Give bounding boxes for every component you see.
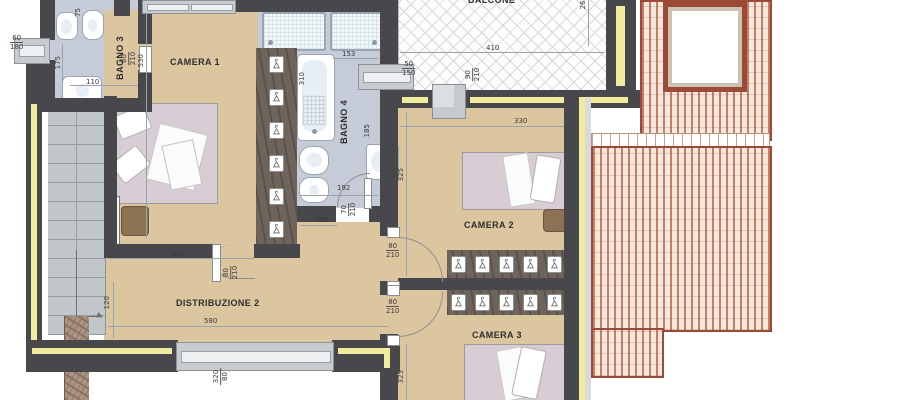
dim-580: 580 bbox=[204, 317, 217, 325]
bagno4-toilet bbox=[299, 146, 329, 175]
wall bbox=[40, 98, 152, 112]
dimension-line bbox=[300, 225, 338, 226]
dim-110: 110 bbox=[86, 78, 99, 86]
wall-outer-right bbox=[564, 90, 579, 400]
dim-window-bagno3: 60180 bbox=[8, 34, 25, 51]
insulation-strip bbox=[338, 348, 390, 354]
wall-center-vertical bbox=[380, 88, 398, 236]
camera3-door-jamb bbox=[387, 285, 400, 296]
room-label-bagno4: BAGNO 4 bbox=[339, 100, 349, 144]
camera1-door-leaf bbox=[212, 244, 221, 282]
distribuzione2-floor bbox=[104, 222, 398, 342]
bagno4-bidet bbox=[299, 177, 329, 203]
hanger-icon bbox=[475, 256, 490, 273]
camera2-door-jamb bbox=[387, 227, 400, 238]
hanger-icon bbox=[523, 294, 538, 311]
room-label-distribuzione2: DISTRIBUZIONE 2 bbox=[176, 298, 260, 308]
dimension-line bbox=[400, 126, 564, 127]
camera1-chair bbox=[121, 206, 149, 236]
wall bbox=[254, 244, 300, 258]
bagno4-shower-tray-left bbox=[262, 12, 326, 51]
hanger-icon bbox=[269, 188, 284, 205]
hanger-icon bbox=[499, 294, 514, 311]
dim-door-camera2: 80210 bbox=[384, 242, 401, 259]
room-label-balcone: BALCONE bbox=[468, 0, 515, 5]
insulation-strip bbox=[402, 97, 428, 103]
wall bbox=[114, 0, 130, 16]
dim-120: 120 bbox=[103, 296, 111, 309]
wall-facing bbox=[585, 98, 591, 400]
hanger-icon bbox=[451, 294, 466, 311]
dimension-line bbox=[406, 344, 407, 400]
staircase bbox=[48, 107, 106, 335]
balcone-tiled-floor bbox=[398, 0, 607, 92]
dim-door-bagno3: 60210 bbox=[120, 50, 137, 67]
dim-185: 185 bbox=[363, 124, 371, 137]
dimension-line bbox=[400, 52, 604, 53]
bagno3-bidet bbox=[82, 10, 104, 40]
dim-door-bagno4: 70210 bbox=[340, 201, 357, 218]
dim-325-camera2: 325 bbox=[397, 168, 405, 181]
camera1-wardrobe bbox=[256, 48, 297, 246]
hanger-icon bbox=[547, 294, 562, 311]
dim-153: 153 bbox=[342, 50, 355, 58]
dim-410: 410 bbox=[486, 44, 499, 52]
dim-530: 530 bbox=[137, 54, 145, 67]
skylight-window bbox=[663, 2, 747, 92]
bagno4-bathtub bbox=[297, 54, 335, 141]
wall-center-vertical bbox=[380, 0, 398, 66]
hanger-icon bbox=[269, 155, 284, 172]
floor-plan: BAGNO 3 CAMERA 1 BAGNO 4 BALCONE CAMERA … bbox=[0, 0, 900, 400]
wall bbox=[40, 60, 55, 100]
hanger-icon bbox=[499, 256, 514, 273]
room-label-camera1: CAMERA 1 bbox=[170, 57, 220, 67]
hanger-icon bbox=[269, 56, 284, 73]
wall bbox=[138, 70, 152, 112]
hanger-icon bbox=[547, 256, 562, 273]
balcone-door bbox=[432, 84, 466, 119]
dimension-line bbox=[333, 58, 378, 59]
hanger-icon bbox=[475, 294, 490, 311]
insulation-strip bbox=[470, 97, 628, 103]
insulation-strip bbox=[384, 354, 390, 368]
dim-window-distribuzione: 32080 bbox=[212, 368, 229, 385]
dim-wc: 75 bbox=[74, 8, 82, 17]
dim-door-camera3: 80210 bbox=[384, 298, 401, 315]
bagno4-door-leaf bbox=[364, 178, 372, 209]
dim-door-balcone: 90210 bbox=[464, 66, 481, 83]
dimension-line bbox=[70, 85, 138, 86]
dim-door-camera1: 80210 bbox=[222, 264, 239, 281]
camera3-door-jamb bbox=[387, 335, 400, 346]
dimension-line bbox=[146, 14, 147, 238]
distribuzione-window bbox=[176, 342, 334, 371]
bagno4-shower-tray-right bbox=[330, 12, 383, 51]
camera3-wardrobe bbox=[447, 290, 566, 315]
roof-main-panel bbox=[591, 146, 772, 332]
dim-195: 195 bbox=[316, 216, 329, 224]
stair-arrow-line-v bbox=[76, 250, 77, 316]
hanger-icon bbox=[451, 256, 466, 273]
wall bbox=[40, 0, 55, 40]
dim-325-camera3: 325 bbox=[397, 370, 405, 383]
dim-window-bagno4: 50150 bbox=[400, 60, 417, 77]
roof-step-panel bbox=[591, 328, 664, 378]
dim-175: 175 bbox=[54, 56, 62, 69]
hanger-icon bbox=[269, 221, 284, 238]
dimension-line bbox=[113, 282, 114, 338]
room-label-camera3: CAMERA 3 bbox=[472, 330, 522, 340]
dim-260: 260 bbox=[579, 0, 587, 9]
hanger-icon bbox=[269, 89, 284, 106]
wall bbox=[104, 244, 216, 258]
dimension-line bbox=[300, 195, 378, 196]
dimension-line bbox=[588, 0, 589, 46]
dim-192: 192 bbox=[337, 184, 350, 192]
dimension-line bbox=[62, 44, 63, 96]
room-label-camera2: CAMERA 2 bbox=[464, 220, 514, 230]
dim-330: 330 bbox=[514, 117, 527, 125]
dimension-line bbox=[406, 112, 407, 276]
dimension-line bbox=[108, 258, 254, 259]
dimension-line bbox=[108, 326, 388, 327]
hanger-icon bbox=[523, 256, 538, 273]
camera1-window bbox=[142, 0, 236, 14]
insulation-strip bbox=[616, 6, 625, 86]
wall-stairs-divider bbox=[104, 96, 117, 248]
dim-310: 310 bbox=[298, 72, 306, 85]
wall bbox=[138, 12, 152, 44]
wall-outer-bottom bbox=[26, 340, 178, 372]
insulation-strip bbox=[32, 348, 172, 354]
skylight-frame bbox=[668, 7, 742, 87]
roof-ridge-band bbox=[591, 133, 770, 147]
dim-365: 365 bbox=[170, 250, 183, 258]
camera2-wardrobe bbox=[447, 250, 566, 278]
hanger-icon bbox=[269, 122, 284, 139]
insulation-strip bbox=[31, 104, 37, 342]
